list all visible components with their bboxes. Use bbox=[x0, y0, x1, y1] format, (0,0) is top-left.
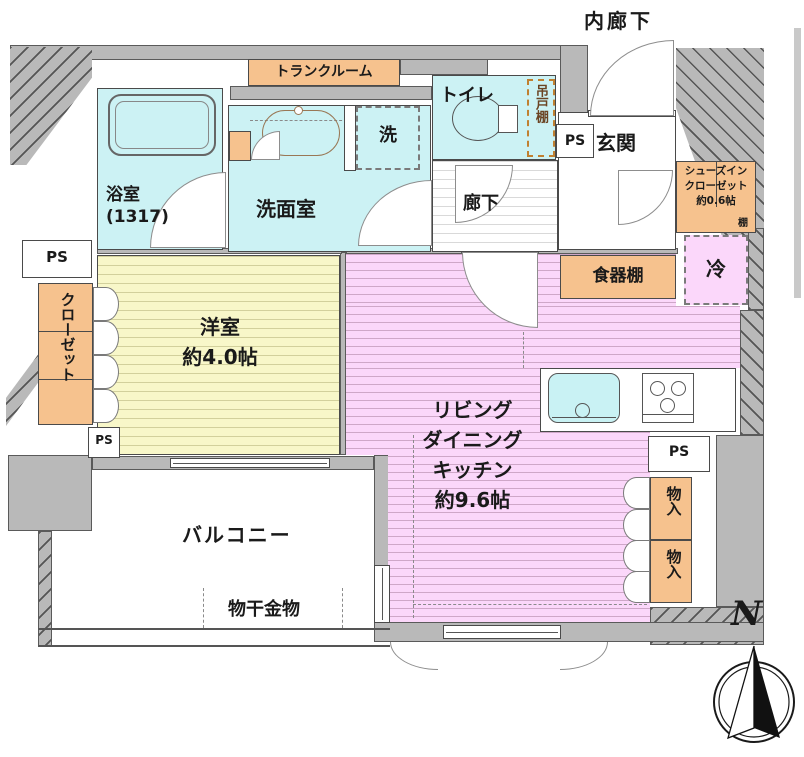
faucet-icon bbox=[294, 106, 303, 115]
ps-top-label: PS bbox=[556, 132, 594, 150]
wall-balcony-block bbox=[8, 455, 92, 531]
trunk-room-label: トランクルーム bbox=[248, 63, 400, 81]
storage-folding-door bbox=[623, 540, 650, 572]
ps-left-small-label: PS bbox=[88, 433, 120, 449]
ceiling-dash-line bbox=[523, 332, 524, 368]
compass-icon bbox=[706, 640, 802, 752]
storage-folding-door bbox=[623, 509, 650, 541]
laundry-hardware-label: 物干金物 bbox=[228, 598, 300, 621]
wall bbox=[400, 59, 488, 75]
hatched-wall-corner-top-left bbox=[10, 47, 92, 165]
closet-folding-door bbox=[93, 355, 119, 389]
balcony-edge bbox=[38, 645, 390, 647]
entrance-door bbox=[590, 40, 674, 116]
washroom-label: 洗面室 bbox=[256, 196, 316, 222]
wall-right bbox=[748, 228, 764, 310]
wall bbox=[560, 45, 588, 115]
floor-plan: 内廊下 トランクルーム 浴室(1317) 洗面室 洗 トイレ 吊戸棚 PS 玄関… bbox=[0, 0, 804, 757]
closet-folding-door bbox=[93, 287, 119, 321]
wall bbox=[10, 45, 588, 60]
bathtub-icon bbox=[108, 94, 216, 156]
storage-upper-label: 物入 bbox=[663, 486, 683, 516]
inner-corridor-label: 内廊下 bbox=[584, 8, 653, 34]
ceiling-dash-line bbox=[413, 604, 647, 605]
closet-folding-door bbox=[93, 321, 119, 355]
balcony-edge bbox=[38, 628, 390, 630]
storage-folding-door bbox=[623, 571, 650, 603]
balcony-door-arc bbox=[560, 642, 608, 670]
laundry-hook-mark bbox=[342, 588, 343, 628]
wall-outer-corridor bbox=[794, 28, 801, 298]
compass-north-label: N bbox=[731, 592, 762, 636]
hanging-cupboard-label: 吊戸棚 bbox=[531, 84, 548, 123]
balcony-door-arc bbox=[390, 642, 438, 670]
ps-right-label: PS bbox=[648, 443, 710, 461]
refrigerator-label: 冷 bbox=[684, 256, 748, 282]
balcony-label: バルコニー bbox=[182, 522, 292, 548]
cupboard-label: 食器棚 bbox=[560, 265, 676, 287]
bathroom-label: 浴室(1317) bbox=[106, 184, 169, 228]
window-ldk-balcony-side bbox=[374, 565, 390, 623]
room-ldk bbox=[346, 306, 740, 368]
hatched-wall-left bbox=[6, 352, 40, 426]
toilet-label: トイレ bbox=[440, 84, 494, 107]
shoes-in-closet-label: シューズインクローゼット約0.6帖 bbox=[676, 164, 756, 210]
stove-icon bbox=[642, 373, 694, 423]
wall-stub bbox=[344, 105, 356, 171]
entrance-label: 玄関 bbox=[596, 130, 636, 156]
closet-label: クローゼット bbox=[57, 292, 77, 382]
storage-folding-door bbox=[623, 477, 650, 509]
wall-right bbox=[716, 435, 764, 607]
wall-ldk-bottom bbox=[374, 622, 764, 642]
storage-lower-label: 物入 bbox=[663, 549, 683, 579]
ldk-label: リビングダイニングキッチン約9.6帖 bbox=[385, 395, 560, 515]
wall bbox=[230, 86, 432, 100]
toilet-tank-icon bbox=[498, 105, 518, 133]
shoes-closet-shelf-label: 棚 bbox=[738, 217, 748, 230]
ps-left-label: PS bbox=[22, 248, 92, 268]
window-western-balcony bbox=[170, 458, 330, 468]
window-ldk-south bbox=[443, 625, 561, 639]
laundry-hook-mark bbox=[203, 588, 204, 628]
washer-label: 洗 bbox=[356, 124, 420, 147]
western-room-label: 洋室約4.0帖 bbox=[130, 312, 310, 372]
corridor-label: 廊下 bbox=[463, 192, 499, 215]
water-heater-box bbox=[229, 131, 251, 161]
wall-right bbox=[740, 310, 764, 435]
closet-folding-door bbox=[93, 389, 119, 423]
